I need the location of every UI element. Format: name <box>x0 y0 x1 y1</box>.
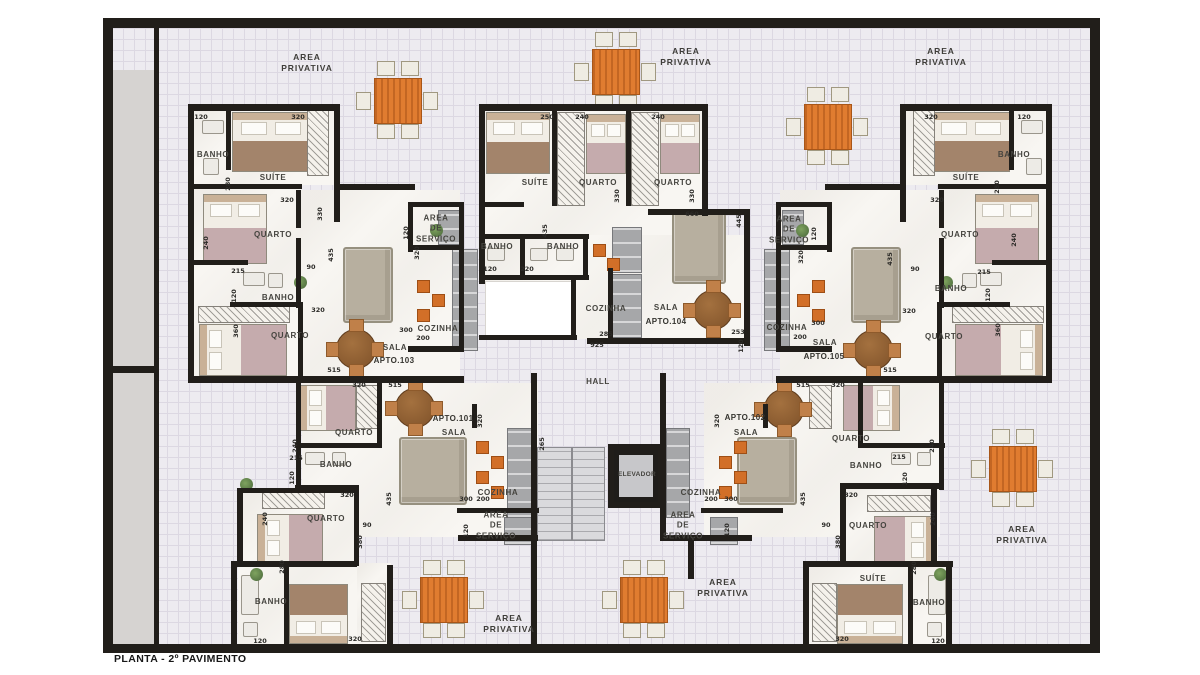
room-label: QUARTO <box>307 514 345 524</box>
stool <box>734 441 747 454</box>
room-label: AREA PRIVATIVA <box>915 46 967 68</box>
wall <box>296 238 301 308</box>
wardrobe <box>557 112 585 206</box>
bed <box>289 584 348 644</box>
stool <box>797 294 810 307</box>
dimension-label: 330 <box>688 189 696 203</box>
wardrobe <box>262 492 325 509</box>
room-label: BANHO <box>197 150 229 160</box>
bed <box>486 112 550 174</box>
dimension-label: 120 <box>253 637 267 645</box>
dimension-label: 320 <box>476 414 484 428</box>
wall <box>231 561 357 567</box>
dimension-label: 435 <box>327 248 335 262</box>
kitchen-counter <box>666 428 690 518</box>
room-label: QUARTO <box>832 434 870 444</box>
wall <box>103 18 113 653</box>
stool <box>417 280 430 293</box>
wall <box>744 210 750 346</box>
dimension-label: 215 <box>289 454 303 462</box>
wall <box>188 260 248 265</box>
room-label: COZINHA <box>767 323 808 333</box>
dimension-label: 240 <box>291 439 299 453</box>
dimension-label: 215 <box>977 268 991 276</box>
wall <box>479 335 577 340</box>
dimension-label: 280 <box>910 561 918 575</box>
wardrobe <box>812 583 837 642</box>
dimension-label: 200 <box>704 495 718 503</box>
room-label: QUARTO <box>849 521 887 531</box>
dimension-label: 250 <box>540 113 554 121</box>
room-label: SUÍTE <box>522 178 549 188</box>
room-label: BANHO <box>998 150 1030 160</box>
dimension-label: 925 <box>590 341 604 349</box>
bed <box>586 114 626 174</box>
dimension-label: 320 <box>797 250 805 264</box>
wall <box>295 443 382 448</box>
wall <box>992 260 1052 265</box>
dimension-label: 320 <box>924 113 938 121</box>
wall <box>608 444 664 450</box>
dimension-label: 320 <box>835 635 849 643</box>
room-label: BANHO <box>262 293 294 303</box>
dimension-label: 360 <box>232 324 240 338</box>
wall <box>335 184 415 190</box>
wall <box>776 202 832 207</box>
wall <box>608 502 664 508</box>
dimension-label: 120 <box>194 113 208 121</box>
dimension-label: 445 <box>735 214 743 228</box>
wardrobe <box>952 306 1044 323</box>
wall <box>900 104 1052 111</box>
room-label: AREA DE SERVIÇO <box>769 214 809 245</box>
orange-dining-table <box>354 61 440 139</box>
room-label: APTO.101 <box>433 414 474 424</box>
wall <box>479 202 524 207</box>
dimension-label: 120 <box>402 226 410 240</box>
wall <box>701 508 783 513</box>
room-label: AREA DE SERVIÇO <box>476 510 516 541</box>
stool <box>719 456 732 469</box>
dimension-label: 220 <box>520 265 534 273</box>
room-label: COZINHA <box>418 324 459 334</box>
dimension-label: 200 <box>793 333 807 341</box>
wardrobe <box>198 306 290 323</box>
dimension-label: 120 <box>288 471 296 485</box>
sofa <box>672 212 726 284</box>
stool <box>812 280 825 293</box>
room-label: QUARTO <box>941 230 979 240</box>
bath-fixture <box>243 272 265 286</box>
unfurnished-room <box>485 281 572 337</box>
room-label: APTO.102 <box>725 413 766 423</box>
dimension-label: 515 <box>796 381 810 389</box>
dimension-label: 285 <box>599 330 613 338</box>
wall <box>803 561 809 644</box>
dimension-label: 380 <box>834 535 842 549</box>
wall <box>608 444 614 508</box>
room-label: QUARTO <box>925 332 963 342</box>
stool <box>476 441 489 454</box>
dimension-label: 300 <box>399 326 413 334</box>
wall <box>688 537 694 579</box>
wall <box>188 188 194 383</box>
room-label: AREA PRIVATIVA <box>660 46 712 68</box>
room-label: QUARTO <box>254 230 292 240</box>
room-label: AREA DE SERVIÇO <box>416 213 456 244</box>
dimension-label: 240 <box>928 439 936 453</box>
dimension-label: 120 <box>984 288 992 302</box>
dimension-label: 240 <box>929 512 937 526</box>
wall <box>626 110 631 206</box>
dimension-label: 330 <box>316 207 324 221</box>
room-label: SALA <box>813 338 837 348</box>
bath-fixture <box>202 120 224 134</box>
wall <box>571 280 576 340</box>
dimension-label: 253 <box>731 328 745 336</box>
wall <box>840 483 940 489</box>
bath-fixture <box>1021 120 1043 134</box>
dimension-label: 435 <box>541 224 549 238</box>
stool <box>491 456 504 469</box>
bath-fixture <box>917 452 931 466</box>
wall <box>1009 110 1014 170</box>
wall <box>334 104 340 222</box>
wall <box>296 383 301 490</box>
wall <box>803 561 953 567</box>
kitchen-counter <box>452 249 478 351</box>
dimension-label: 320 <box>348 635 362 643</box>
dimension-label: 515 <box>883 366 897 374</box>
room-label: AREA PRIVATIVA <box>483 613 535 635</box>
dimension-label: 120 <box>462 524 470 538</box>
stool <box>432 294 445 307</box>
room-label: AREA PRIVATIVA <box>697 577 749 599</box>
dimension-label: 90 <box>306 263 315 271</box>
room-label: SALA <box>734 428 758 438</box>
dimension-label: 215 <box>231 267 245 275</box>
room-label: QUARTO <box>579 178 617 188</box>
wardrobe <box>809 385 832 429</box>
wall <box>1046 104 1052 192</box>
room-label: APTO.103 <box>374 356 415 366</box>
wall <box>520 239 525 279</box>
dimension-label: 300 <box>724 495 738 503</box>
room-label: BANHO <box>913 598 945 608</box>
bath-fixture <box>530 248 548 261</box>
room-label: BANHO <box>935 284 967 294</box>
wall <box>900 104 906 222</box>
room-label: BANHO <box>850 461 882 471</box>
bath-fixture <box>268 273 283 288</box>
dimension-label: 90 <box>362 521 371 529</box>
wall <box>587 338 749 344</box>
wall <box>103 366 155 373</box>
dimension-label: 215 <box>892 453 906 461</box>
wall <box>296 190 301 228</box>
bed <box>975 194 1039 264</box>
room-label: AREA PRIVATIVA <box>996 524 1048 546</box>
stool <box>417 309 430 322</box>
orange-dining-table <box>969 429 1055 507</box>
wall <box>408 346 464 352</box>
dimension-label: 330 <box>613 189 621 203</box>
bath-fixture <box>243 622 258 637</box>
stool <box>593 244 606 257</box>
wall <box>1090 18 1100 653</box>
wall <box>658 444 664 508</box>
orange-dining-table <box>784 87 870 165</box>
dimension-label: 200 <box>476 495 490 503</box>
room-label: BANHO <box>481 242 513 252</box>
sofa <box>399 437 467 505</box>
kitchen-counter <box>507 428 533 518</box>
bed <box>660 114 700 174</box>
dimension-label: 240 <box>575 113 589 121</box>
wall <box>937 302 942 383</box>
wall <box>552 110 557 206</box>
dimension-label: 120 <box>483 265 497 273</box>
orange-dining-table <box>400 560 486 638</box>
wall <box>1046 188 1052 383</box>
wall <box>354 488 359 566</box>
dimension-label: 200 <box>416 334 430 342</box>
dimension-label: 300 <box>459 495 473 503</box>
room-label: SALA <box>654 303 678 313</box>
wall <box>946 561 952 644</box>
dimension-label: 240 <box>202 236 210 250</box>
sofa <box>343 247 393 323</box>
wall <box>387 565 393 644</box>
wardrobe <box>356 385 379 429</box>
dimension-label: 320 <box>713 414 721 428</box>
room-label: SALA <box>383 343 407 353</box>
dimension-label: 120 <box>723 523 731 537</box>
stool <box>734 471 747 484</box>
dimension-label: 320 <box>291 113 305 121</box>
wall <box>825 184 905 190</box>
wall <box>226 110 231 170</box>
wall <box>479 234 589 239</box>
bath-fixture <box>1026 158 1042 175</box>
wall <box>237 488 243 566</box>
wardrobe <box>307 110 329 176</box>
bed <box>843 385 900 431</box>
dimension-label: 320 <box>311 306 325 314</box>
wall <box>188 104 194 192</box>
dimension-label: 660 <box>685 210 699 218</box>
floor-plan: PLANTA - 2º PAVIMENTO AREA PRIVATIVAAREA… <box>0 0 1200 675</box>
dimension-label: 320 <box>352 381 366 389</box>
dimension-label: 515 <box>327 366 341 374</box>
orange-dining-table <box>600 560 686 638</box>
room-label: SUÍTE <box>860 574 887 584</box>
room-label: APTO.105 <box>804 352 845 362</box>
wall <box>298 302 303 383</box>
wardrobe <box>361 583 386 642</box>
dimension-label: 120 <box>931 637 945 645</box>
room-label: HALL <box>586 377 610 387</box>
dimension-label: 90 <box>821 521 830 529</box>
wall <box>231 561 237 644</box>
room-label: BANHO <box>320 460 352 470</box>
wall <box>103 18 1100 28</box>
dimension-label: 120 <box>230 289 238 303</box>
wall <box>408 202 464 207</box>
room-label: SUÍTE <box>953 173 980 183</box>
dimension-label: 360 <box>994 323 1002 337</box>
dimension-label: 320 <box>280 196 294 204</box>
wall <box>154 28 159 644</box>
balcony-strip <box>112 70 154 644</box>
room-label: QUARTO <box>654 178 692 188</box>
dimension-label: 320 <box>831 381 845 389</box>
wall <box>479 104 708 111</box>
bath-fixture <box>928 575 946 615</box>
room-label: QUARTO <box>335 428 373 438</box>
stairs <box>537 447 605 541</box>
room-label: ELEVADOR <box>618 471 656 479</box>
room-label: AREA DE SERVIÇO <box>663 510 703 541</box>
wall <box>459 202 464 352</box>
wall <box>776 376 1052 383</box>
wall <box>377 383 382 445</box>
wall <box>583 234 588 279</box>
dimension-label: 120 <box>1017 113 1031 121</box>
wardrobe <box>867 495 931 512</box>
dimension-label: 380 <box>356 535 364 549</box>
wall <box>103 644 1100 653</box>
room-label: APTO.104 <box>646 317 687 327</box>
dimension-label: 435 <box>886 252 894 266</box>
stool <box>476 471 489 484</box>
room-label: SALA <box>442 428 466 438</box>
wall <box>939 238 944 308</box>
dimension-label: 240 <box>651 113 665 121</box>
wall <box>188 376 464 383</box>
wall <box>939 383 944 490</box>
wall <box>940 302 1010 307</box>
dimension-label: 300 <box>811 319 825 327</box>
room-label: SUÍTE <box>260 173 287 183</box>
bed <box>932 112 1010 172</box>
room-label: BANHO <box>255 597 287 607</box>
dimension-label: 90 <box>910 265 919 273</box>
dimension-label: 240 <box>1010 233 1018 247</box>
wall <box>702 104 708 216</box>
dimension-label: 320 <box>413 246 421 260</box>
bed <box>232 112 310 172</box>
dimension-label: 320 <box>902 307 916 315</box>
dimension-label: 435 <box>385 492 393 506</box>
wall <box>188 104 340 111</box>
dimension-label: 435 <box>799 492 807 506</box>
dimension-label: 320 <box>340 491 354 499</box>
dimension-label: 240 <box>261 512 269 526</box>
room-label: AREA PRIVATIVA <box>281 52 333 74</box>
plant <box>250 568 263 581</box>
bath-fixture <box>927 622 942 637</box>
wall <box>479 104 485 284</box>
bath-fixture <box>241 575 259 615</box>
bath-fixture <box>203 158 219 175</box>
orange-dining-table <box>572 32 658 110</box>
dimension-label: 120 <box>810 227 818 241</box>
room-label: COZINHA <box>586 304 627 314</box>
dimension-label: 265 <box>538 437 546 451</box>
wardrobe <box>631 112 659 206</box>
dimension-label: 320 <box>930 196 944 204</box>
dimension-label: 320 <box>844 491 858 499</box>
dimension-label: 280 <box>278 560 286 574</box>
dimension-label: 515 <box>388 381 402 389</box>
dimension-label: 120 <box>737 339 745 353</box>
plan-title: PLANTA - 2º PAVIMENTO <box>114 653 246 665</box>
room-label: BANHO <box>547 242 579 252</box>
dimension-label: 280 <box>993 180 1001 194</box>
dimension-label: 280 <box>224 177 232 191</box>
room-label: QUARTO <box>271 331 309 341</box>
dimension-label: 120 <box>901 472 909 486</box>
bed <box>299 385 356 431</box>
wall <box>188 184 302 189</box>
